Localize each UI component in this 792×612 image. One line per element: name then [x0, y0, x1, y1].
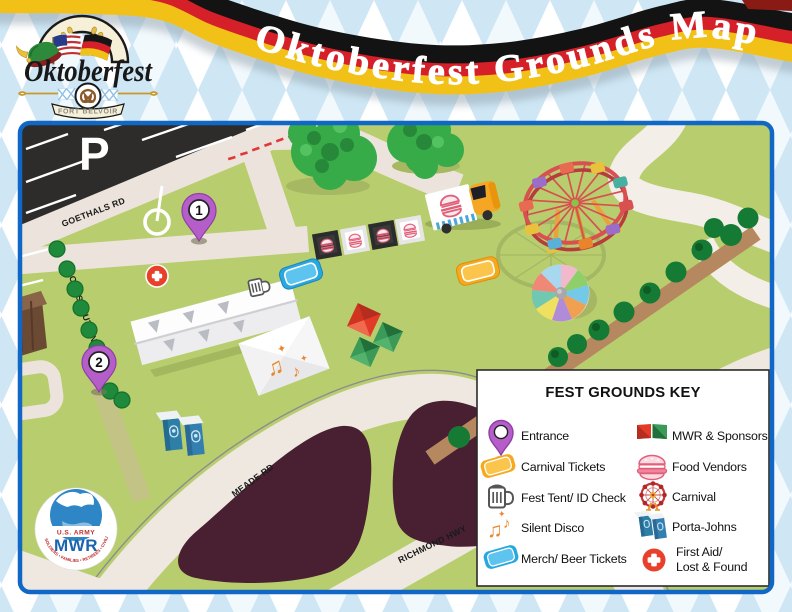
svg-text:MWR & Sponsors: MWR & Sponsors: [672, 429, 768, 443]
svg-text:2: 2: [95, 355, 103, 370]
svg-text:Porta-Johns: Porta-Johns: [672, 520, 737, 534]
svg-text:♫: ♫: [487, 519, 503, 542]
svg-text:FEST GROUNDS KEY: FEST GROUNDS KEY: [545, 385, 700, 401]
svg-text:Silent Disco: Silent Disco: [521, 521, 584, 535]
svg-text:Entrance: Entrance: [521, 429, 569, 443]
svg-text:Food Vendors: Food Vendors: [672, 460, 747, 474]
svg-text:FORT BELVOIR: FORT BELVOIR: [58, 109, 118, 116]
svg-text:Merch/ Beer Tickets: Merch/ Beer Tickets: [521, 552, 627, 566]
svg-text:1: 1: [195, 203, 203, 218]
svg-text:First Aid/: First Aid/: [676, 545, 723, 559]
svg-text:✦: ✦: [498, 509, 506, 519]
svg-text:P: P: [79, 128, 110, 180]
svg-text:Lost & Found: Lost & Found: [676, 560, 748, 574]
svg-text:MWR: MWR: [54, 536, 98, 555]
svg-text:Fest Tent/ ID Check: Fest Tent/ ID Check: [521, 491, 627, 505]
svg-text:Carnival Tickets: Carnival Tickets: [521, 460, 605, 474]
svg-text:Carnival: Carnival: [672, 490, 716, 504]
